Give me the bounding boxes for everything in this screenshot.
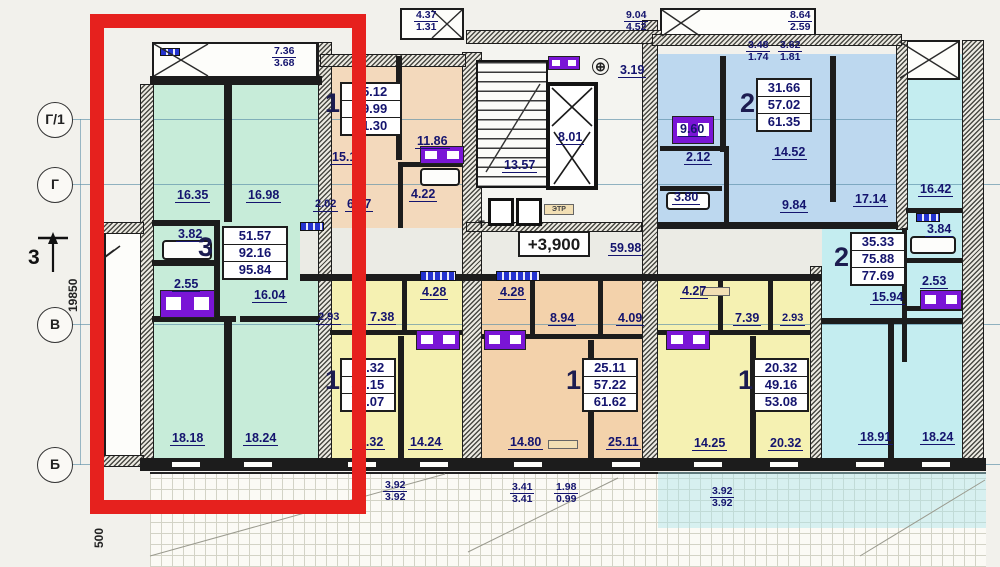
highlight-rectangle bbox=[90, 14, 366, 514]
vent-tag bbox=[916, 213, 940, 222]
section-arrow-icon bbox=[38, 232, 68, 272]
kitchen-unit bbox=[416, 330, 460, 350]
window bbox=[856, 461, 884, 468]
room-area-label: 16.42 bbox=[918, 182, 953, 197]
vent-box bbox=[548, 440, 578, 449]
floor-plan: ⊕ bbox=[0, 0, 1000, 567]
room-area-label: 4.09 bbox=[616, 311, 644, 326]
window bbox=[514, 461, 542, 468]
balcony-dim: 8.642.59 bbox=[788, 10, 812, 33]
room-area-label: 4.22 bbox=[409, 187, 437, 202]
level-mark: +3,900 bbox=[518, 231, 590, 257]
stairs-area-label: 13.57 bbox=[502, 158, 537, 173]
room-area-label: 14.25 bbox=[692, 436, 727, 451]
apartment-areas-table: 25.11 57.22 61.62 bbox=[582, 358, 638, 412]
axis-row-g: Г bbox=[37, 167, 73, 203]
window bbox=[420, 461, 448, 468]
room-area-label: 18.24 bbox=[920, 430, 955, 445]
axis-row-g1: Г/1 bbox=[37, 102, 73, 138]
balcony-dim: 3.621.81 bbox=[778, 40, 802, 63]
room-area-label: 4.28 bbox=[498, 285, 526, 300]
room-area-label: 18.91 bbox=[858, 430, 893, 445]
dimension-line-vertical bbox=[80, 119, 81, 465]
wall-segment bbox=[642, 20, 658, 470]
kitchen-unit bbox=[666, 330, 710, 350]
room-area-label: 2.12 bbox=[684, 150, 712, 165]
vestibule-door bbox=[516, 198, 542, 226]
wall-segment bbox=[398, 162, 403, 228]
room-area-label: 3.80 bbox=[672, 190, 700, 205]
terrace-dim: 1.980.99 bbox=[554, 482, 578, 505]
room-area-label: 4.28 bbox=[420, 285, 448, 300]
electrical-panel bbox=[548, 56, 580, 70]
etr-room-label: ЭТР bbox=[544, 204, 574, 215]
kitchen-unit bbox=[484, 330, 526, 350]
room-area-label: 3.84 bbox=[925, 222, 953, 237]
wall-segment bbox=[398, 336, 404, 460]
apartment-areas-table: 31.66 57.02 61.35 bbox=[756, 78, 812, 132]
room-area-label: 11.86 bbox=[415, 134, 450, 149]
wall-segment bbox=[530, 280, 535, 334]
wall-segment bbox=[810, 266, 822, 462]
wall-segment bbox=[720, 56, 726, 152]
window bbox=[922, 461, 950, 468]
room-area-label: 2.53 bbox=[920, 274, 948, 289]
wall-segment bbox=[906, 258, 962, 263]
balcony-strip-bottom bbox=[658, 472, 986, 528]
wall-segment bbox=[896, 40, 908, 230]
terrace-dim: 3.413.41 bbox=[510, 482, 534, 505]
window bbox=[770, 461, 798, 468]
vent-symbol-icon: ⊕ bbox=[592, 58, 609, 75]
bathtub bbox=[420, 168, 460, 186]
room-area-label: 20.32 bbox=[768, 436, 803, 451]
wall-segment bbox=[658, 222, 898, 229]
wall-segment bbox=[962, 40, 984, 470]
wall-segment bbox=[598, 280, 603, 334]
wall-segment bbox=[724, 146, 729, 228]
room-area-label: 8.94 bbox=[548, 311, 576, 326]
kitchen-unit bbox=[920, 290, 962, 310]
apartment-number: 1 bbox=[738, 367, 753, 394]
room-area-label: 7.39 bbox=[733, 311, 761, 326]
apartment-number: 2 bbox=[740, 90, 755, 117]
balcony-dim: 9.044.52 bbox=[624, 10, 648, 33]
lobby-area-label: 3.19 bbox=[618, 63, 646, 78]
window bbox=[694, 461, 722, 468]
apartment-number: 1 bbox=[566, 367, 581, 394]
room-area-label: 7.38 bbox=[368, 310, 396, 325]
apartment-number: 2 bbox=[834, 244, 849, 271]
room-area-label: 14.80 bbox=[508, 435, 543, 450]
vestibule-door bbox=[488, 198, 514, 226]
radiator-tag bbox=[420, 271, 456, 281]
room-area-label: 14.52 bbox=[772, 145, 807, 160]
room-area-label: 2.93 bbox=[780, 311, 805, 326]
apartment-2b-top-fill bbox=[906, 54, 962, 230]
wall-segment bbox=[402, 280, 407, 332]
terrace-dim: 3.923.92 bbox=[383, 480, 407, 503]
room-area-label: 9.84 bbox=[780, 198, 808, 213]
axis-row-b: Б bbox=[37, 447, 73, 483]
room-area-label: 17.14 bbox=[853, 192, 888, 207]
radiator-tag bbox=[496, 271, 540, 281]
wall-segment bbox=[652, 34, 902, 46]
wall-segment bbox=[300, 274, 822, 281]
balcony-dim: 3.481.74 bbox=[746, 40, 770, 63]
room-area-label: 25.11 bbox=[606, 435, 641, 450]
apartment-areas-table: 20.32 49.16 53.08 bbox=[753, 358, 809, 412]
corridor-area-label: 59.98 bbox=[608, 241, 643, 256]
room-area-label: 9.60 bbox=[678, 122, 706, 137]
window bbox=[612, 461, 640, 468]
balcony-dim: 4.371.31 bbox=[414, 10, 438, 33]
room-area-label: 14.24 bbox=[408, 435, 443, 450]
terrace-dim: 3.923.92 bbox=[710, 486, 734, 509]
section-mark-label: 3 bbox=[28, 246, 40, 270]
room-area-label: 15.94 bbox=[870, 290, 905, 305]
apartment-areas-table: 35.33 75.88 77.69 bbox=[850, 232, 906, 286]
bathtub bbox=[910, 236, 956, 254]
chute-mark: Т bbox=[478, 219, 485, 231]
axis-row-v: В bbox=[37, 307, 73, 343]
height-dimension-label: 19850 bbox=[66, 279, 80, 312]
elevator-area-label: 8.01 bbox=[556, 130, 584, 145]
wall-segment bbox=[830, 56, 836, 202]
wall-segment bbox=[768, 280, 773, 332]
room-area-label: 4.27 bbox=[680, 284, 708, 299]
offset-dimension-label: 500 bbox=[92, 528, 106, 548]
